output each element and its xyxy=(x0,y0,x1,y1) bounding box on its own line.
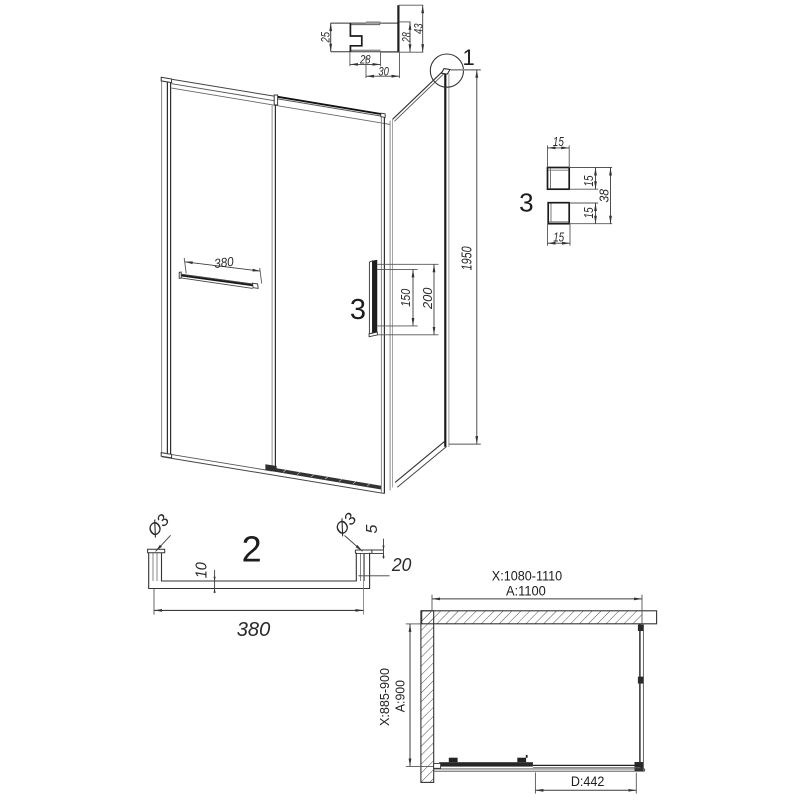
svg-text:30: 30 xyxy=(378,66,389,78)
svg-text:38: 38 xyxy=(597,188,612,202)
svg-text:3: 3 xyxy=(350,294,366,326)
svg-text:5: 5 xyxy=(364,525,381,534)
svg-text:3: 3 xyxy=(519,188,533,218)
svg-text:15: 15 xyxy=(553,229,565,244)
svg-text:1950: 1950 xyxy=(458,246,475,270)
svg-text:43: 43 xyxy=(414,23,426,34)
svg-text:15: 15 xyxy=(581,207,596,219)
svg-text:28: 28 xyxy=(359,54,371,66)
svg-text:10: 10 xyxy=(194,562,211,578)
svg-text:X:1080-1110: X:1080-1110 xyxy=(492,569,562,584)
svg-text:15: 15 xyxy=(581,175,596,187)
svg-text:A:900: A:900 xyxy=(394,680,408,712)
svg-text:2: 2 xyxy=(242,529,262,570)
svg-text:15: 15 xyxy=(553,134,565,149)
svg-text:380: 380 xyxy=(237,619,271,641)
svg-text:D:442: D:442 xyxy=(571,774,605,789)
svg-text:150: 150 xyxy=(399,289,413,307)
svg-text:28: 28 xyxy=(402,32,414,43)
svg-text:25: 25 xyxy=(320,31,332,43)
svg-text:200: 200 xyxy=(421,288,435,311)
svg-text:A:1100: A:1100 xyxy=(506,583,546,598)
svg-text:1: 1 xyxy=(462,45,474,70)
svg-text:20: 20 xyxy=(391,555,411,575)
svg-text:X:885-900: X:885-900 xyxy=(378,668,392,726)
svg-text:380: 380 xyxy=(213,254,235,271)
